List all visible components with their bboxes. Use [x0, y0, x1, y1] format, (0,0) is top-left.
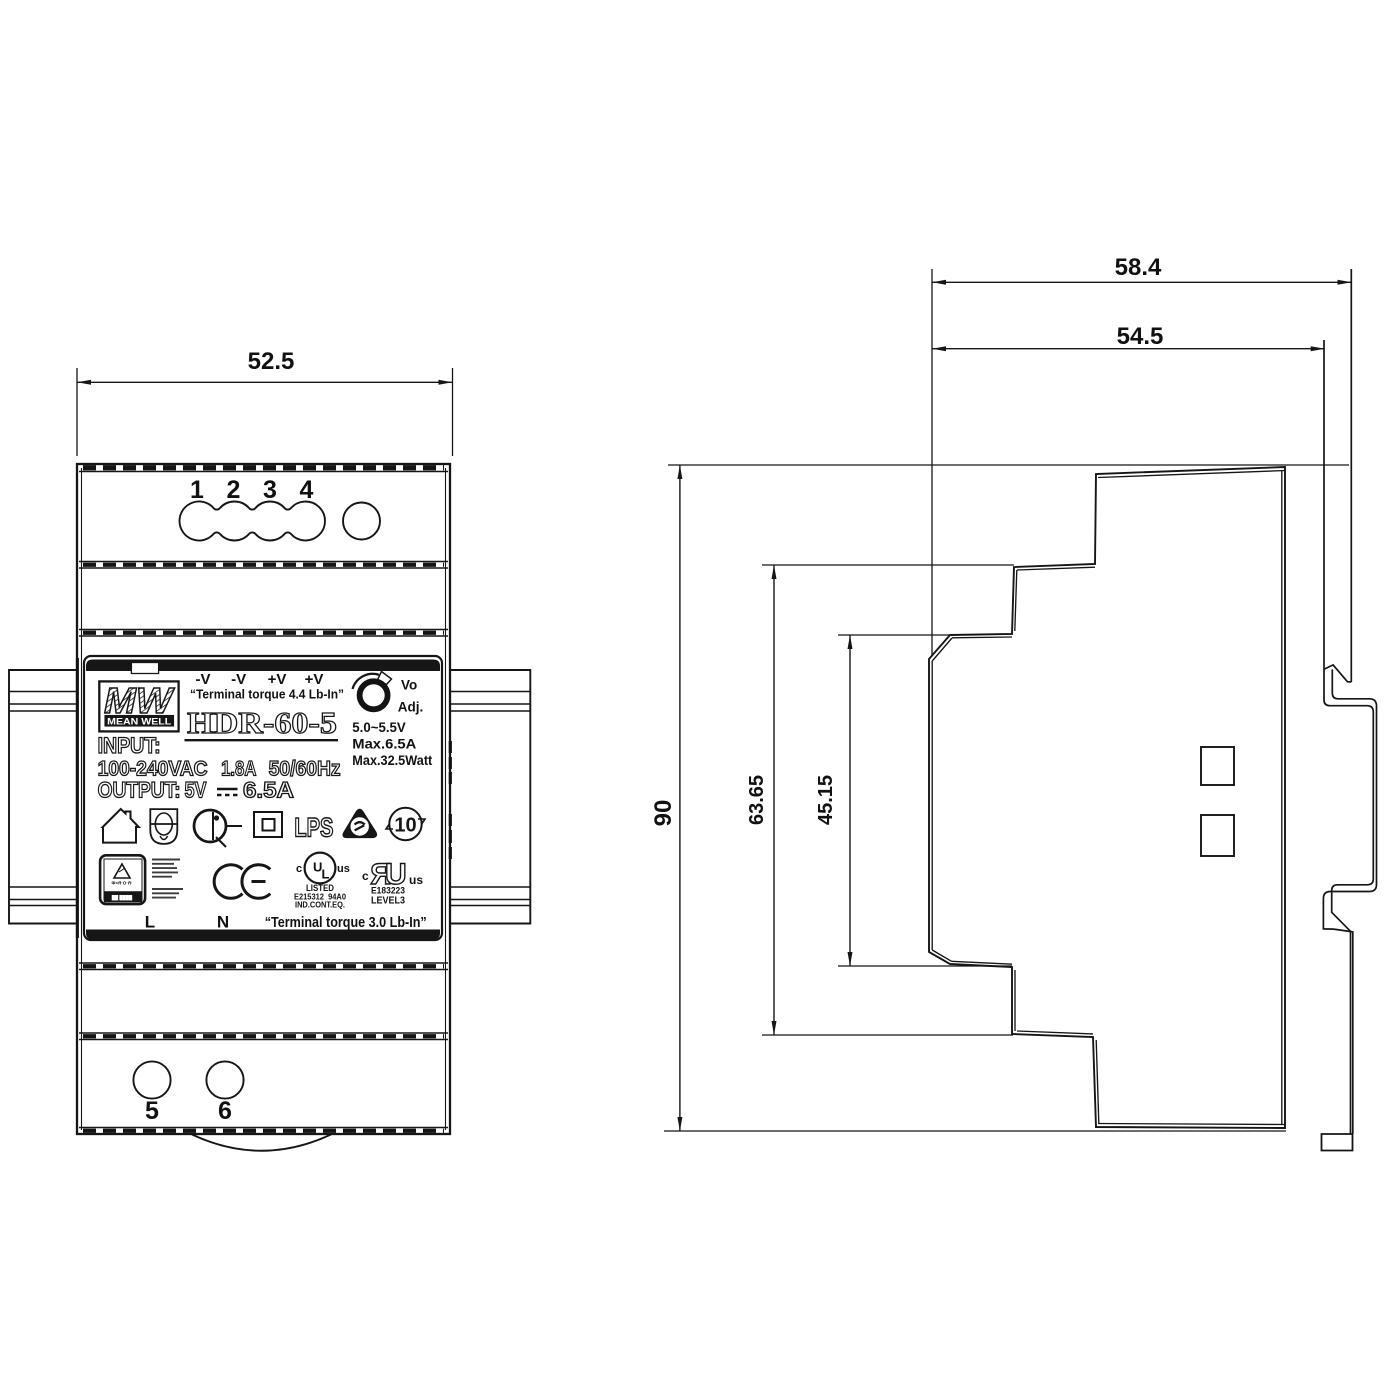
svg-text:6.5A: 6.5A	[243, 778, 294, 803]
svg-text:OUTPUT:: OUTPUT:	[98, 778, 181, 803]
svg-text:us: us	[337, 863, 350, 875]
svg-text:LPS: LPS	[294, 813, 333, 843]
svg-text:c: c	[296, 863, 302, 875]
svg-text:4: 4	[300, 476, 314, 504]
svg-text:MW: MW	[104, 680, 175, 721]
svg-text:2: 2	[227, 476, 241, 504]
svg-text:Adj.: Adj.	[398, 700, 424, 715]
svg-text:45.15: 45.15	[815, 775, 837, 825]
svg-text:us: us	[409, 873, 423, 887]
svg-text:6: 6	[218, 1097, 232, 1125]
svg-text:10: 10	[394, 815, 416, 837]
svg-text:52.5: 52.5	[248, 348, 295, 375]
svg-text:+V: +V	[305, 671, 324, 688]
svg-text:63.65: 63.65	[746, 775, 768, 825]
svg-text:“Terminal torque 3.0 Lb-In”: “Terminal torque 3.0 Lb-In”	[265, 915, 427, 931]
svg-text:5V: 5V	[185, 778, 207, 803]
svg-text:-V: -V	[196, 671, 211, 688]
svg-text:5.0~5.5V: 5.0~5.5V	[352, 719, 406, 735]
svg-text:INPUT:: INPUT:	[98, 733, 161, 758]
svg-text:Max.32.5Watt: Max.32.5Watt	[352, 752, 432, 768]
svg-text:MEAN WELL: MEAN WELL	[107, 717, 171, 728]
svg-text:3: 3	[263, 476, 277, 504]
svg-text:+V: +V	[268, 671, 287, 688]
svg-text:E183223: E183223	[371, 886, 405, 896]
svg-text:1: 1	[190, 476, 204, 504]
svg-text:-V: -V	[231, 671, 246, 688]
svg-text:██ ████: ██ ████	[112, 894, 133, 901]
svg-text:L: L	[145, 913, 155, 932]
svg-text:58.4: 58.4	[1115, 254, 1162, 281]
svg-text:LEVEL3: LEVEL3	[371, 896, 405, 907]
svg-text:Max.6.5A: Max.6.5A	[352, 735, 416, 751]
svg-text:L: L	[322, 867, 330, 882]
svg-text:Vo: Vo	[401, 678, 417, 693]
svg-text:N: N	[217, 913, 229, 932]
svg-text:90: 90	[650, 800, 677, 827]
svg-text:HDR-60-5: HDR-60-5	[187, 705, 337, 740]
svg-text:“Terminal torque 4.4 Lb-In”: “Terminal torque 4.4 Lb-In”	[190, 687, 344, 702]
svg-text:5: 5	[145, 1097, 159, 1125]
svg-text:c: c	[362, 869, 369, 883]
svg-text:Ф×Я·О·Я·: Ф×Я·О·Я·	[112, 881, 133, 886]
svg-text:IND.CONT.EQ.: IND.CONT.EQ.	[295, 900, 345, 910]
svg-text:54.5: 54.5	[1117, 323, 1164, 350]
